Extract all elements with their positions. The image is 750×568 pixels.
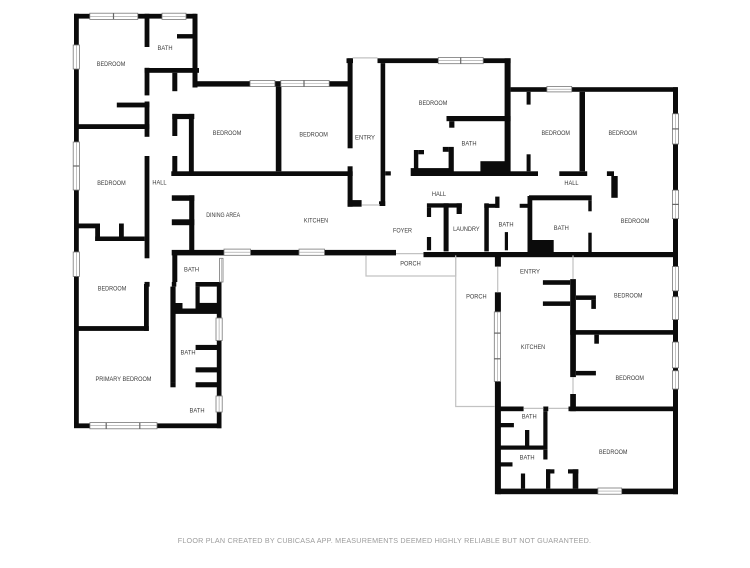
svg-text:BEDROOM: BEDROOM xyxy=(213,130,242,137)
svg-text:BEDROOM: BEDROOM xyxy=(542,130,571,137)
svg-text:BEDROOM: BEDROOM xyxy=(97,180,126,187)
svg-text:BATH: BATH xyxy=(522,413,537,420)
svg-text:ENTRY: ENTRY xyxy=(355,134,376,141)
svg-text:BATH: BATH xyxy=(554,225,569,232)
svg-text:BEDROOM: BEDROOM xyxy=(614,293,643,300)
svg-text:BEDROOM: BEDROOM xyxy=(98,286,127,293)
svg-text:BATH: BATH xyxy=(190,408,205,415)
svg-text:ENTRY: ENTRY xyxy=(520,268,541,275)
svg-text:PRIMARY BEDROOM: PRIMARY BEDROOM xyxy=(96,376,152,383)
svg-text:BEDROOM: BEDROOM xyxy=(599,449,628,456)
svg-text:BATH: BATH xyxy=(181,350,196,357)
svg-text:KITCHEN: KITCHEN xyxy=(521,344,545,351)
svg-text:FOYER: FOYER xyxy=(393,227,412,234)
svg-text:BEDROOM: BEDROOM xyxy=(419,100,448,107)
svg-text:DINING AREA: DINING AREA xyxy=(206,212,240,219)
svg-text:LAUNDRY: LAUNDRY xyxy=(453,226,480,233)
svg-text:HALL: HALL xyxy=(432,191,446,198)
svg-text:BEDROOM: BEDROOM xyxy=(621,218,650,225)
svg-text:BATH: BATH xyxy=(462,141,477,148)
svg-text:BEDROOM: BEDROOM xyxy=(97,61,126,68)
svg-text:BEDROOM: BEDROOM xyxy=(616,375,645,382)
svg-text:BATH: BATH xyxy=(184,267,199,274)
svg-text:BEDROOM: BEDROOM xyxy=(609,130,638,137)
svg-text:HALL: HALL xyxy=(152,180,166,187)
svg-text:BEDROOM: BEDROOM xyxy=(299,131,328,138)
svg-text:BATH: BATH xyxy=(520,455,535,462)
svg-text:PORCH: PORCH xyxy=(466,293,487,300)
svg-text:PORCH: PORCH xyxy=(400,261,421,268)
svg-text:BATH: BATH xyxy=(158,45,173,52)
svg-text:HALL: HALL xyxy=(564,180,578,187)
svg-text:FLOOR PLAN CREATED BY CUBICASA: FLOOR PLAN CREATED BY CUBICASA APP. MEAS… xyxy=(178,536,591,545)
svg-text:KITCHEN: KITCHEN xyxy=(304,218,328,225)
svg-text:BATH: BATH xyxy=(499,222,514,229)
